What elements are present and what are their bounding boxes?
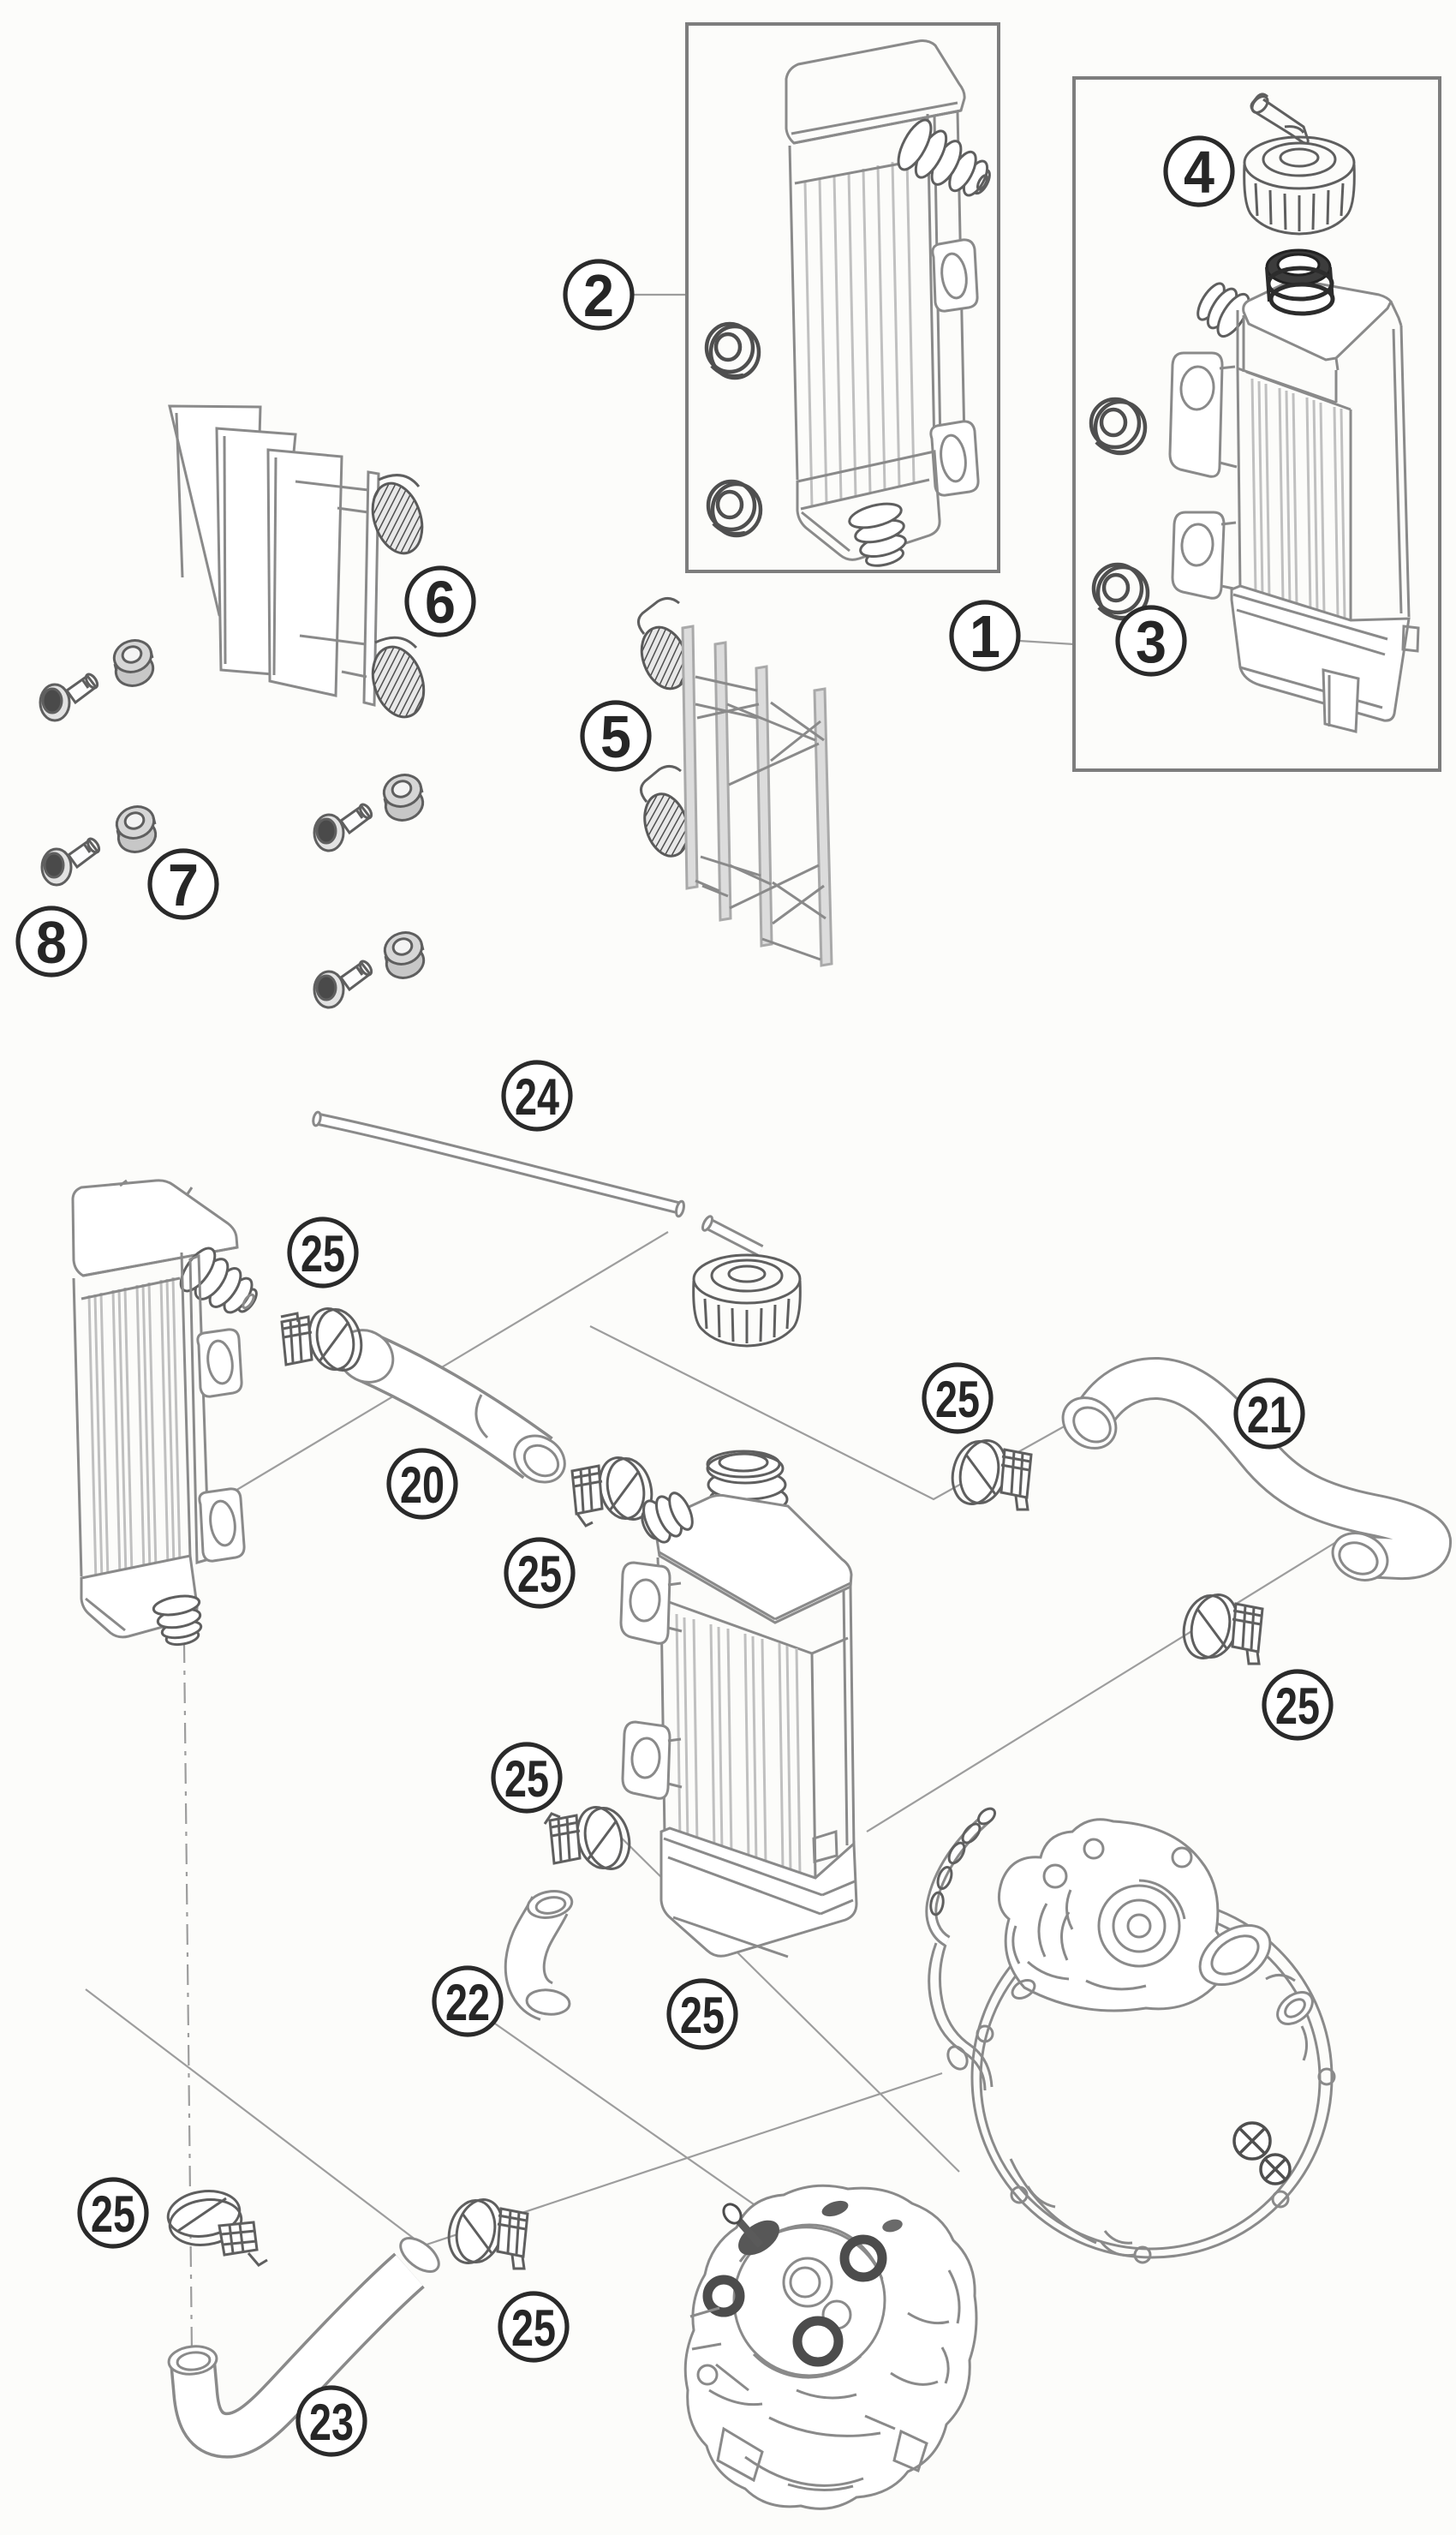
svg-text:21: 21 [1247,1386,1292,1444]
svg-text:25: 25 [935,1371,980,1428]
svg-text:5: 5 [600,703,631,770]
svg-text:6: 6 [425,569,456,636]
svg-text:7: 7 [168,852,199,918]
svg-text:25: 25 [91,2185,135,2243]
svg-text:1: 1 [970,603,1000,670]
svg-text:23: 23 [309,2394,354,2451]
svg-text:25: 25 [680,1987,725,2044]
svg-text:22: 22 [445,1974,490,2031]
svg-text:2: 2 [583,262,614,329]
svg-text:25: 25 [517,1546,562,1603]
svg-text:25: 25 [301,1225,345,1282]
svg-text:25: 25 [504,1750,549,1808]
svg-text:3: 3 [1136,608,1167,675]
svg-text:20: 20 [400,1456,445,1514]
svg-text:25: 25 [1275,1677,1320,1735]
svg-text:8: 8 [36,909,67,976]
svg-text:24: 24 [515,1068,559,1126]
svg-text:25: 25 [511,2299,556,2357]
svg-text:4: 4 [1184,139,1214,206]
